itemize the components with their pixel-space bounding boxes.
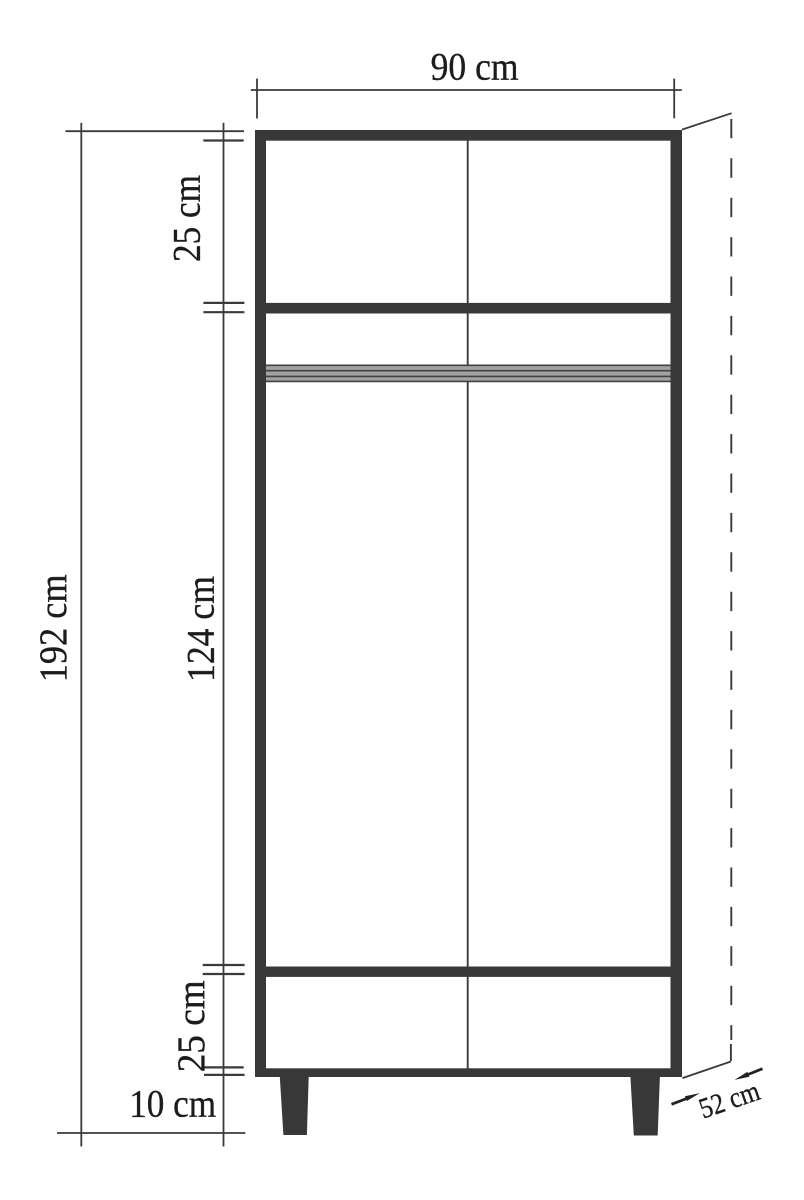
- svg-text:124 cm: 124 cm: [180, 576, 223, 682]
- svg-text:10 cm: 10 cm: [129, 1083, 216, 1126]
- svg-text:25 cm: 25 cm: [166, 175, 209, 262]
- svg-text:90 cm: 90 cm: [431, 46, 519, 89]
- svg-text:25 cm: 25 cm: [170, 980, 213, 1072]
- svg-text:192 cm: 192 cm: [32, 574, 75, 682]
- svg-text:52 cm: 52 cm: [695, 1075, 764, 1126]
